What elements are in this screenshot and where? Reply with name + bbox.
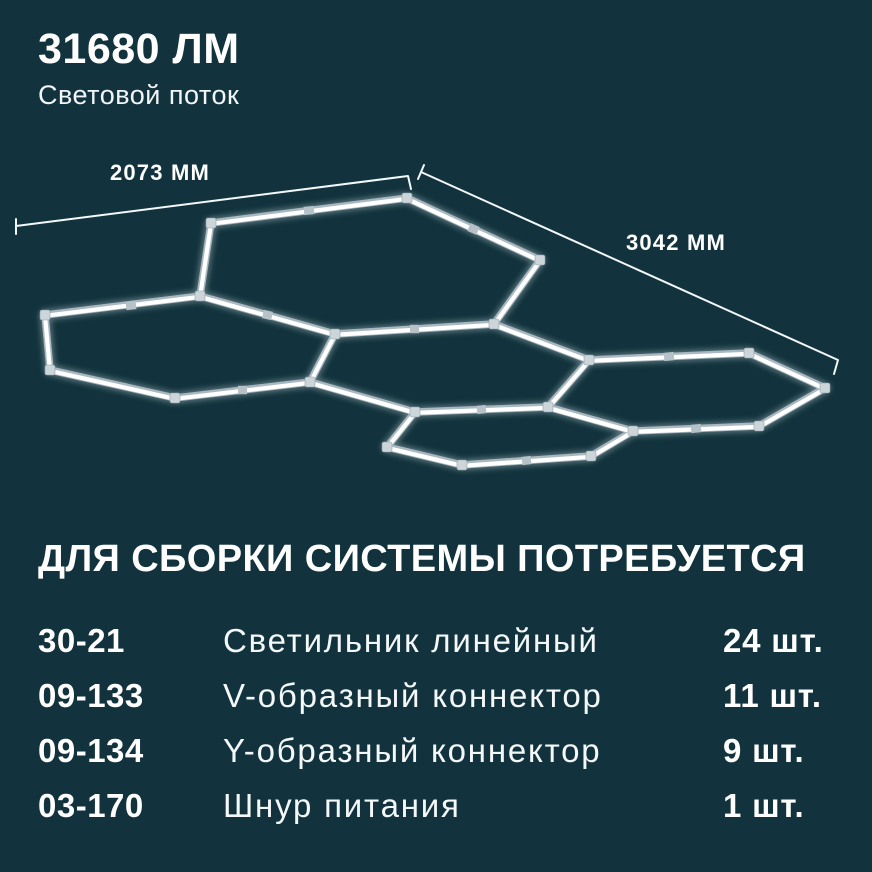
product-infographic: 31680 ЛМ Световой поток: [0, 0, 872, 872]
part-code: 09-134: [38, 732, 223, 770]
parts-heading: ДЛЯ СБОРКИ СИСТЕМЫ ПОТРЕБУЕТСЯ: [38, 538, 806, 581]
part-qty: 9 шт.: [723, 732, 834, 770]
part-name: Светильник линейный: [223, 622, 723, 660]
part-name: V-образный коннектор: [223, 677, 723, 715]
part-code: 09-133: [38, 677, 223, 715]
part-name: Шнур питания: [223, 787, 723, 825]
table-row: 09-134 Y-образный коннектор 9 шт.: [38, 723, 834, 778]
part-qty: 1 шт.: [723, 787, 834, 825]
part-code: 30-21: [38, 622, 223, 660]
width-dimension-label: 2073 ММ: [110, 160, 210, 185]
parts-table: 30-21 Светильник линейный 24 шт. 09-133 …: [38, 613, 834, 833]
lumens-value: 31680 ЛМ: [38, 26, 240, 73]
lumens-caption: Световой поток: [38, 80, 240, 111]
table-row: 03-170 Шнур питания 1 шт.: [38, 778, 834, 833]
table-row: 09-133 V-образный коннектор 11 шт.: [38, 668, 834, 723]
table-row: 30-21 Светильник линейный 24 шт.: [38, 613, 834, 668]
depth-dimension: 3042 ММ: [418, 165, 838, 374]
part-qty: 24 шт.: [723, 622, 834, 660]
depth-dimension-label: 3042 ММ: [626, 230, 726, 255]
part-qty: 11 шт.: [723, 677, 834, 715]
lumens-header: 31680 ЛМ Световой поток: [38, 26, 240, 111]
part-name: Y-образный коннектор: [223, 732, 723, 770]
hexagon-lights-diagram: 2073 ММ 3042 ММ: [0, 140, 872, 520]
part-code: 03-170: [38, 787, 223, 825]
